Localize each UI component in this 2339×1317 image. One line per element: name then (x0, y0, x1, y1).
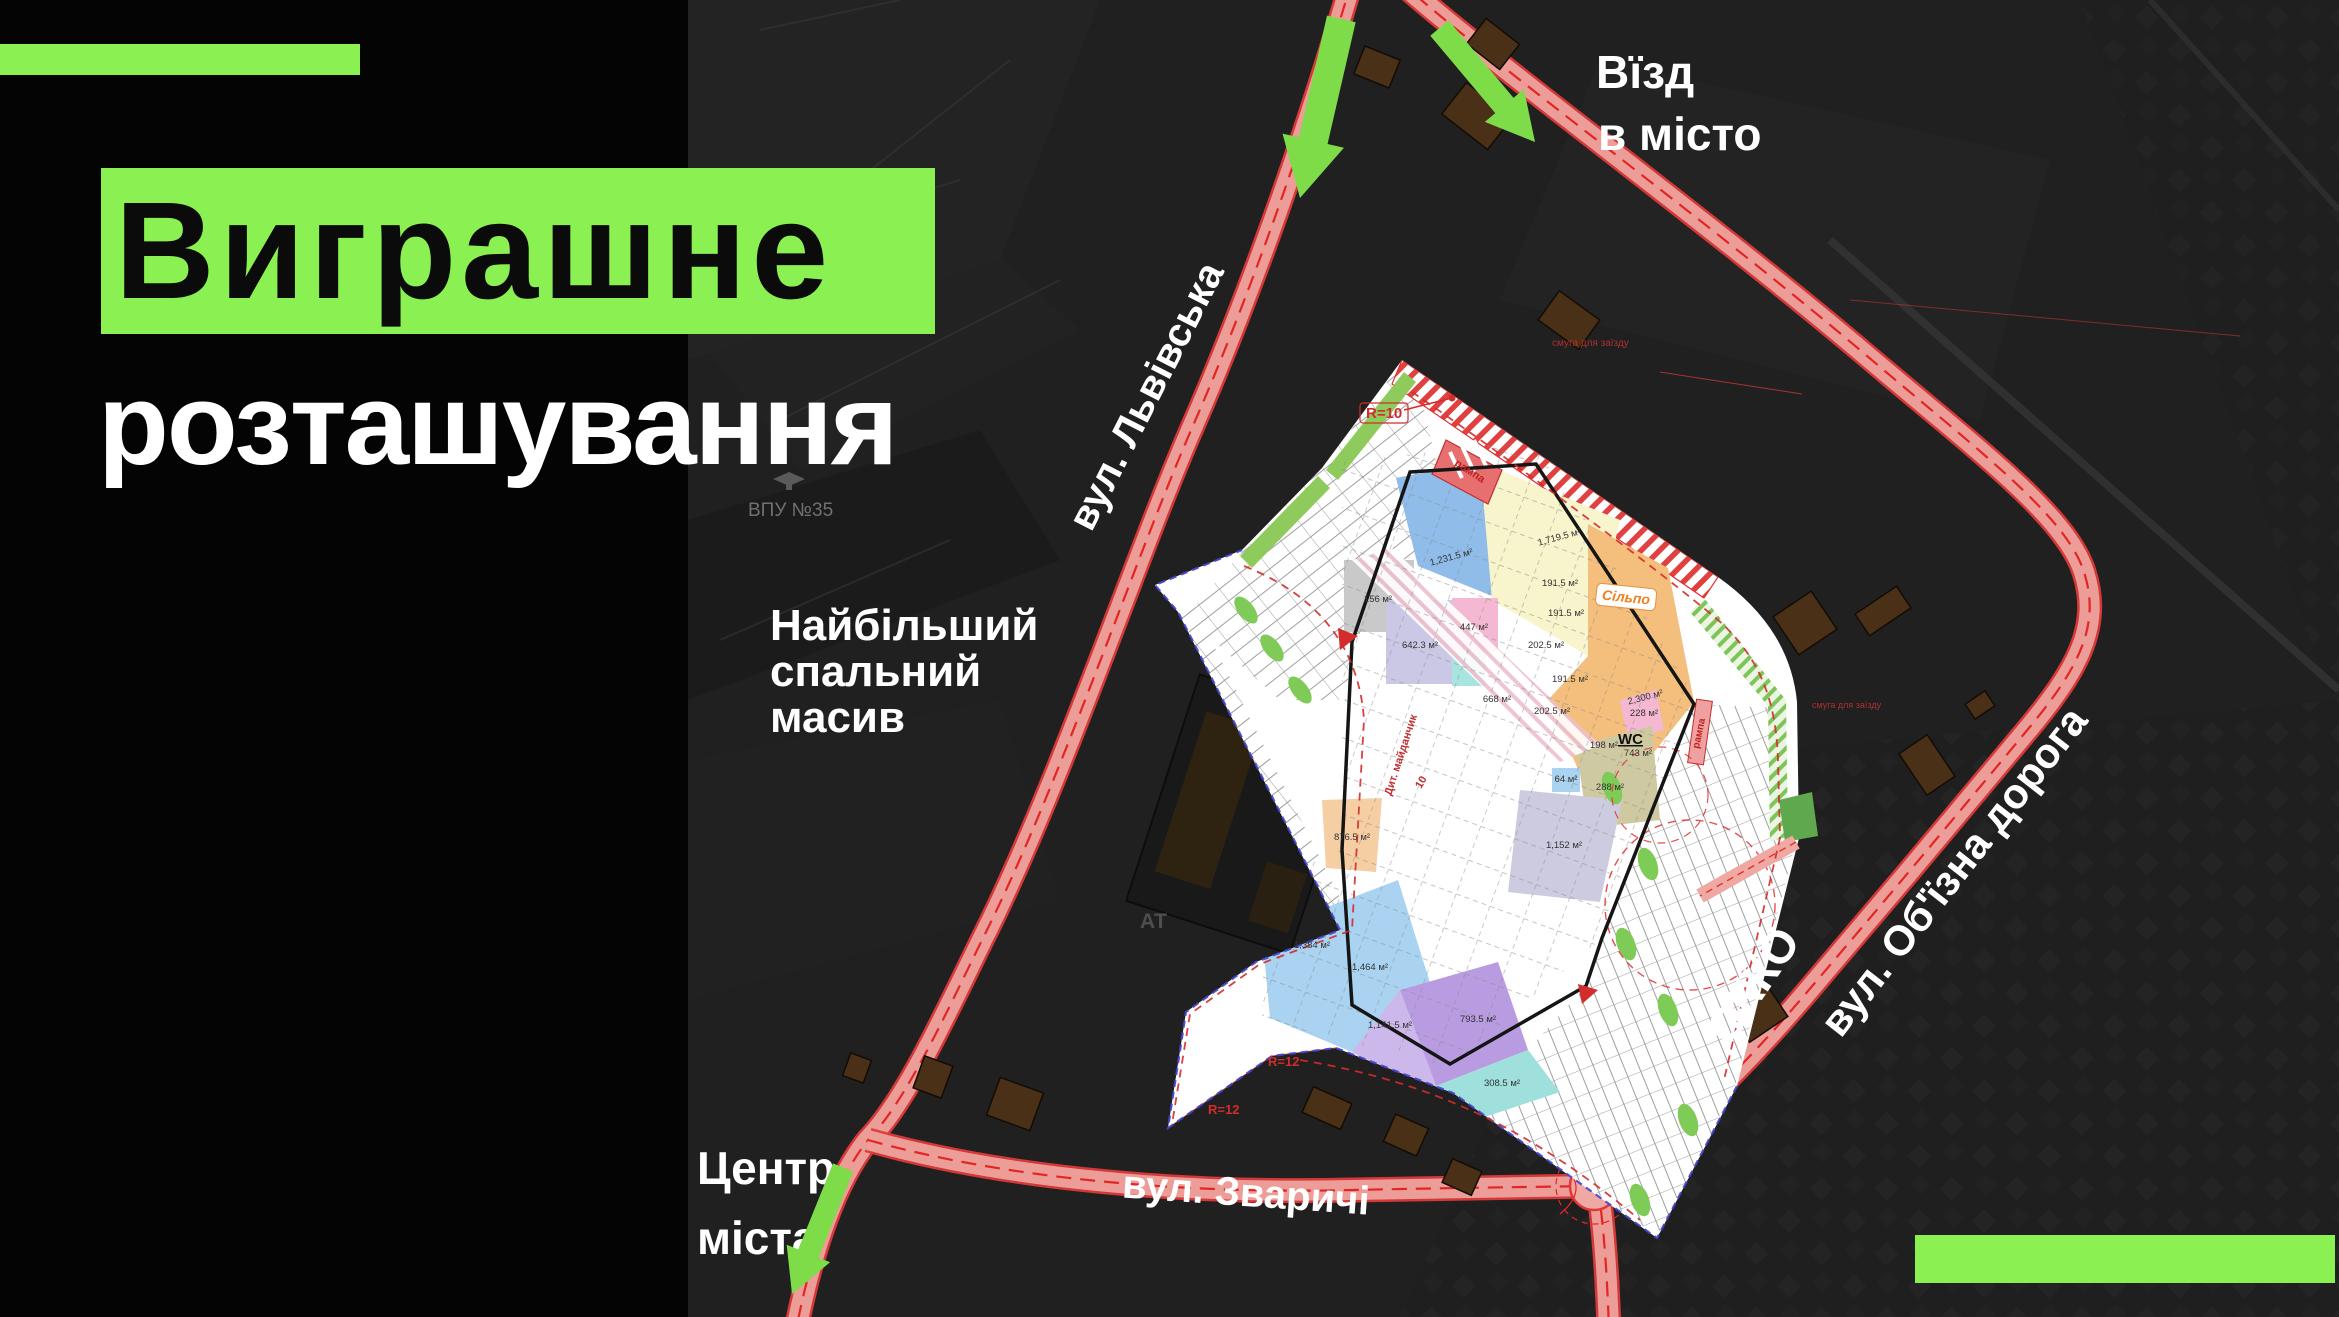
title-highlight-box: Виграшне (101, 168, 935, 334)
area-label: 191.5 м² (1548, 608, 1584, 619)
city-entry-label-line2: в місто (1598, 108, 1761, 160)
district-label-line3: масив (770, 693, 905, 742)
area-label: 1,152 м² (1546, 840, 1582, 851)
area-label: 1,384 м² (1294, 940, 1330, 951)
area-label: 191.5 м² (1552, 674, 1588, 685)
district-label-line1: Найбільший (770, 601, 1038, 650)
area-label: 1,464 м² (1352, 962, 1388, 973)
district-label-line2: спальний (770, 647, 981, 696)
radius-label-r12b: R=12 (1208, 1102, 1239, 1117)
area-label: 308.5 м² (1484, 1078, 1520, 1089)
slide: АТ ВПУ №35 (0, 0, 2339, 1317)
area-label: 288 м² (1596, 782, 1624, 793)
area-label: 447 м² (1460, 622, 1488, 633)
area-label: 228 м² (1630, 708, 1658, 719)
red-annotation-1: смуга для заїзду (1552, 338, 1629, 349)
area-label: 202.5 м² (1534, 706, 1570, 717)
city-center-label-line1: Центр (697, 1142, 835, 1194)
area-label: 202.5 м² (1528, 640, 1564, 651)
area-label: 793.5 м² (1460, 1014, 1496, 1025)
wc-label: WC (1618, 731, 1643, 748)
at-map-label: АТ (1140, 910, 1167, 933)
area-label: 198 м² (1590, 740, 1618, 751)
red-annotation-2: смуга для заїзду (1812, 700, 1882, 710)
page-title: Виграшне (115, 182, 833, 320)
page-subtitle: розташування (98, 366, 896, 482)
area-label: 743 м² (1624, 748, 1652, 759)
area-label: 191.5 м² (1542, 578, 1578, 589)
area-label: 668 м² (1483, 694, 1511, 705)
area-label: 876.5 м² (1334, 832, 1370, 843)
bottom-accent-bar (1915, 1235, 2335, 1283)
city-entry-label-line1: Вїзд (1596, 46, 1694, 98)
area-label: 64 м² (1555, 774, 1578, 785)
area-label: 1,141.5 м² (1368, 1020, 1412, 1031)
top-accent-bar (0, 44, 360, 75)
area-label: 642.3 м² (1402, 640, 1438, 651)
area-label: 156 м² (1364, 594, 1392, 605)
vpu-label: ВПУ №35 (748, 500, 833, 521)
radius-label-r10: R=10 (1366, 405, 1402, 422)
radius-label-r12a: R=12 (1268, 1054, 1299, 1069)
